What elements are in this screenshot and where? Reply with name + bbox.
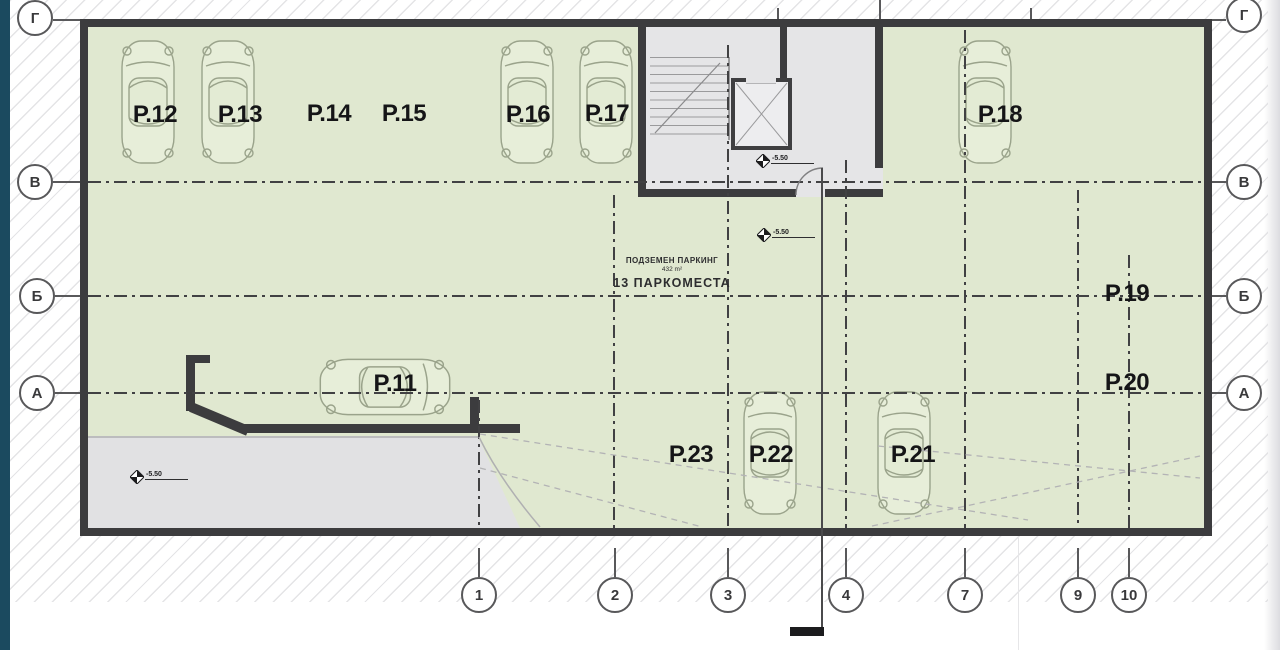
elevator-shaft: [731, 78, 792, 150]
axis-connector: [55, 392, 80, 394]
axis-connector: [1212, 181, 1226, 183]
level-marker: -5.50: [130, 470, 188, 484]
wall-segment: [186, 355, 195, 411]
parking-spot-label: P.22: [749, 441, 793, 469]
parking-spot-label: P.21: [891, 441, 935, 469]
parking-spot-label: P.19: [1105, 280, 1149, 308]
col-axis-bubble: 3: [710, 577, 746, 613]
row-axis-label: А: [1239, 385, 1250, 402]
col-axis-bubble: 1: [461, 577, 497, 613]
axis-tick: [614, 548, 616, 577]
core-wall-bottom-right: [825, 189, 883, 197]
parking-spot-label: P.17: [585, 100, 629, 128]
parking-spot-label: P.23: [669, 441, 713, 469]
row-axis-label: В: [30, 174, 41, 191]
axis-tick: [727, 548, 729, 577]
row-axis-bubble: Г: [17, 0, 53, 36]
axis-line-7: [964, 30, 966, 528]
col-axis-bubble: 10: [1111, 577, 1147, 613]
core-wall-right: [875, 27, 883, 168]
parking-spot-label: P.15: [382, 100, 426, 128]
row-axis-label: Г: [1240, 7, 1249, 24]
axis-line-1: [478, 400, 480, 528]
axis-line-B-row: [88, 181, 1204, 183]
col-axis-bubble: 4: [828, 577, 864, 613]
axis-line-4: [845, 160, 847, 528]
stair-steps: [650, 57, 728, 140]
axis-connector: [55, 295, 80, 297]
axis-tick: [1077, 548, 1079, 577]
level-marker-icon: [756, 154, 770, 168]
row-axis-bubble: А: [19, 375, 55, 411]
annotation-count: 13 ПАРКОМЕСТА: [613, 276, 730, 290]
axis-line-2: [613, 195, 615, 528]
annotation-title: ПОДЗЕМЕН ПАРКИНГ: [613, 256, 730, 265]
plan-annotation: ПОДЗЕМЕН ПАРКИНГ 432 m² 13 ПАРКОМЕСТА: [613, 256, 730, 290]
col-axis-label: 4: [842, 587, 850, 604]
axis-connector: [53, 19, 80, 21]
axis-tick: [1128, 548, 1130, 577]
row-axis-label: Б: [1239, 288, 1250, 305]
axis-tick: [845, 548, 847, 577]
row-axis-bubble: Б: [19, 278, 55, 314]
row-axis-label: А: [32, 385, 43, 402]
floor-plan-page: Г В Б А Г В Б А 1 2 3 4 7 9 10 P.12 P.13…: [0, 0, 1280, 650]
col-axis-label: 2: [611, 587, 619, 604]
level-marker: -5.50: [757, 228, 815, 242]
section-marker-bar: [790, 627, 824, 636]
axis-connector: [53, 181, 80, 183]
row-axis-label: Г: [31, 10, 40, 27]
parking-spot-label: P.14: [307, 100, 351, 128]
col-axis-bubble: 9: [1060, 577, 1096, 613]
parking-spot-label: P.20: [1105, 369, 1149, 397]
axis-line-A-row: [88, 392, 1204, 394]
axis-tick: [964, 548, 966, 577]
level-value: -5.50: [771, 155, 814, 164]
axis-stub: [879, 0, 881, 20]
section-line: [821, 168, 823, 632]
annotation-area: 432 m²: [613, 266, 730, 273]
parking-spot-label: P.16: [506, 101, 550, 129]
parking-spot-label: P.13: [218, 101, 262, 129]
row-axis-bubble: В: [1226, 164, 1262, 200]
row-axis-bubble: В: [17, 164, 53, 200]
axis-connector: [1212, 19, 1226, 21]
col-axis-label: 7: [961, 587, 969, 604]
core-wall-left: [638, 27, 646, 197]
elevator-door: [746, 74, 776, 84]
row-axis-bubble: А: [1226, 375, 1262, 411]
level-marker-icon: [130, 470, 144, 484]
row-axis-label: Б: [32, 288, 43, 305]
axis-line-9: [1077, 190, 1079, 528]
parking-spot-label: P.11: [374, 370, 417, 398]
col-axis-bubble: 7: [947, 577, 983, 613]
col-axis-label: 9: [1074, 587, 1082, 604]
axis-line-B2-row: [88, 295, 1204, 297]
col-axis-label: 10: [1121, 587, 1138, 604]
page-edge-strip: [1264, 0, 1280, 650]
parking-spot-label: P.18: [978, 101, 1022, 129]
axis-connector: [1212, 392, 1226, 394]
col-axis-bubble: 2: [597, 577, 633, 613]
axis-connector: [1212, 295, 1226, 297]
left-accent-bar: [0, 0, 10, 650]
row-axis-label: В: [1239, 174, 1250, 191]
row-axis-bubble: Б: [1226, 278, 1262, 314]
ramp-edge-line: [88, 436, 478, 438]
level-marker-icon: [757, 228, 771, 242]
col-axis-label: 1: [475, 587, 483, 604]
level-marker: -5.50: [756, 154, 814, 168]
parking-spot-label: P.12: [133, 101, 177, 129]
core-wall-bottom-left: [638, 189, 796, 197]
page-seam-line: [1018, 538, 1019, 650]
axis-tick: [478, 548, 480, 577]
col-axis-label: 3: [724, 587, 732, 604]
level-value: -5.50: [145, 471, 188, 480]
level-value: -5.50: [772, 229, 815, 238]
